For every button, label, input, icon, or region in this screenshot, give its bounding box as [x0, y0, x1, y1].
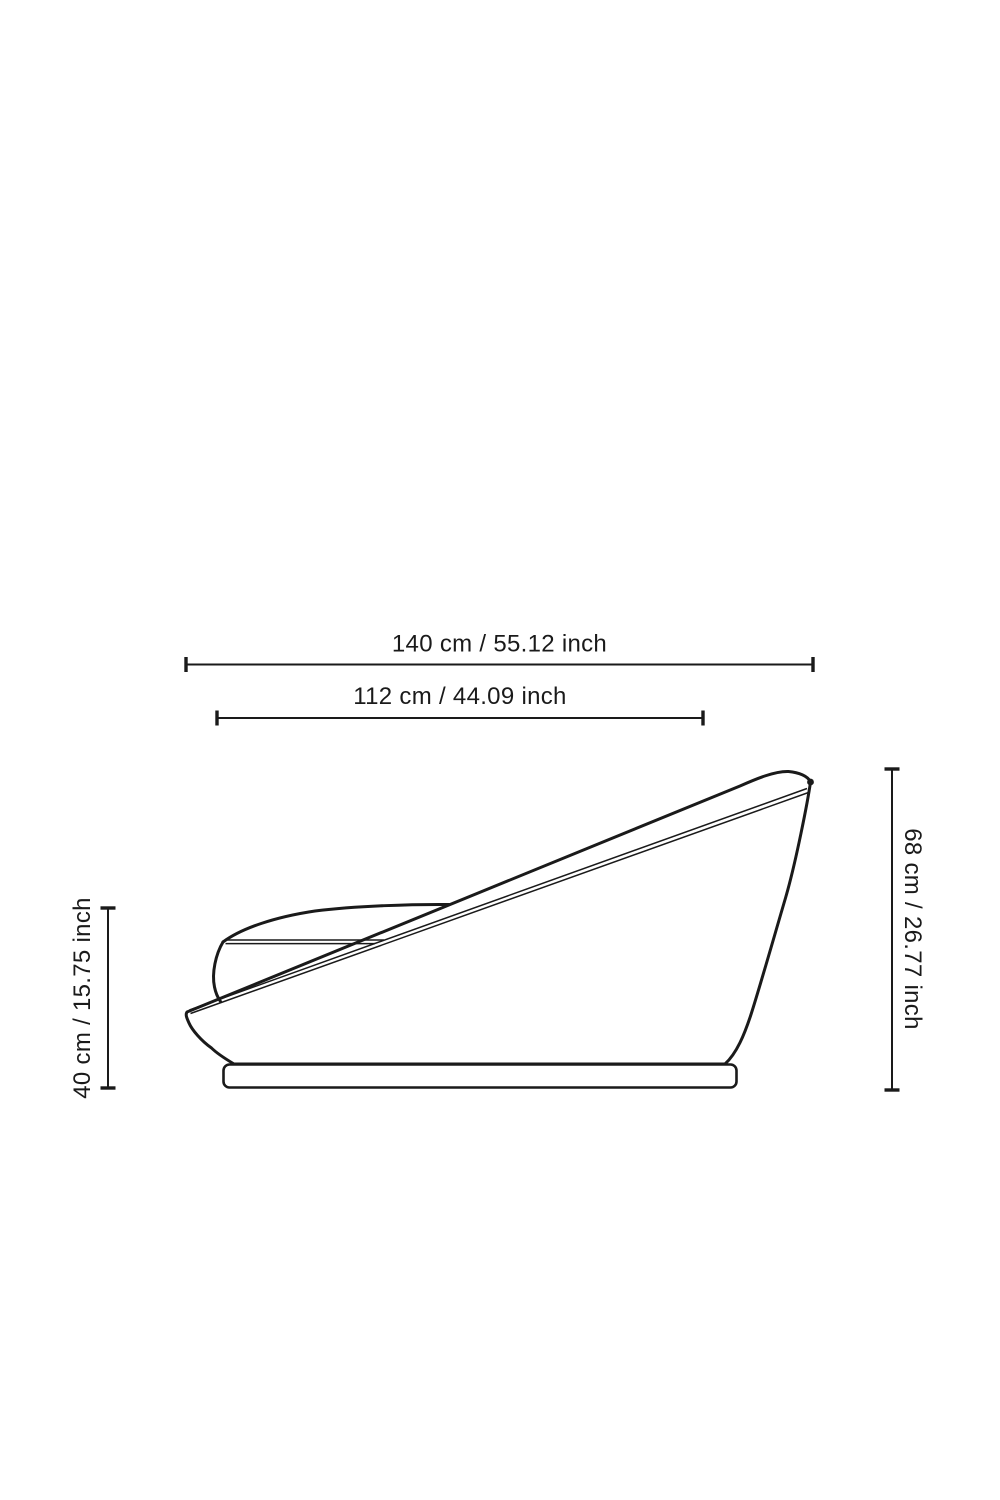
- dimension-line-overall-height: [885, 769, 900, 1090]
- chair-cushion-front-curve: [214, 942, 223, 1002]
- overall-width-label: 140 cm / 55.12 inch: [392, 631, 607, 658]
- chair-backrest-tip-knob: [807, 779, 814, 786]
- chaise-lounge-drawing: [186, 771, 814, 1087]
- seat-height-label: 40 cm / 15.75 inch: [69, 897, 96, 1099]
- dimension-drawing-page: 140 cm / 55.12 inch 112 cm / 44.09 inch …: [0, 0, 1000, 1500]
- dimension-line-overall-width: [186, 657, 813, 672]
- chair-base-plinth: [224, 1065, 737, 1088]
- dimension-drawing-canvas: 140 cm / 55.12 inch 112 cm / 44.09 inch …: [0, 0, 1000, 1500]
- overall-height-label: 68 cm / 26.77 inch: [899, 828, 926, 1030]
- dimension-line-seat-depth: [217, 711, 703, 726]
- dimension-line-seat-height: [101, 908, 116, 1088]
- seat-depth-label: 112 cm / 44.09 inch: [353, 683, 566, 710]
